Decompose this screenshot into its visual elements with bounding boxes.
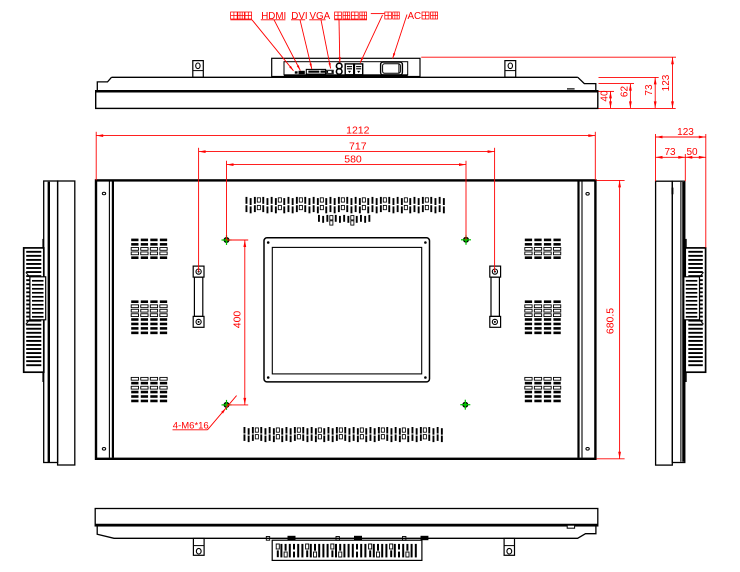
svg-text:AC: AC (408, 11, 422, 22)
svg-text:400: 400 (232, 311, 244, 329)
svg-text:40: 40 (599, 90, 610, 102)
svg-text:73: 73 (644, 84, 655, 96)
svg-text:1212: 1212 (346, 124, 370, 136)
svg-text:50: 50 (686, 147, 698, 158)
svg-text:123: 123 (677, 127, 694, 138)
svg-text:123: 123 (661, 74, 672, 91)
svg-text:73: 73 (664, 147, 676, 158)
svg-text:717: 717 (349, 140, 367, 152)
svg-text:580: 580 (344, 153, 362, 165)
svg-text:62: 62 (619, 86, 630, 98)
svg-text:680.5: 680.5 (604, 308, 616, 334)
